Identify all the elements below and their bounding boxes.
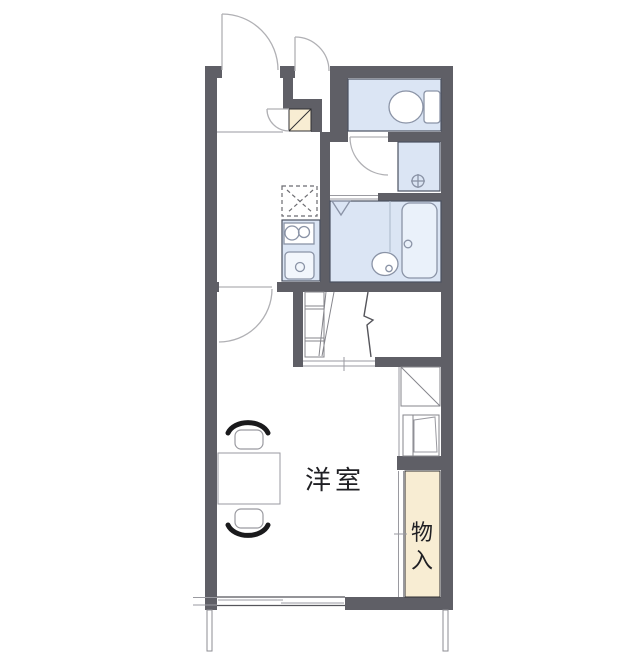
post-left xyxy=(207,610,212,651)
wall-above-closet xyxy=(397,456,453,470)
floor-plan-canvas: 物 入 洋室 xyxy=(0,0,640,658)
bathroom-sink-icon xyxy=(372,253,398,276)
wall-bottom-left-stub xyxy=(205,597,217,610)
wall-shoebox-top xyxy=(283,99,322,109)
toilet-tank-icon xyxy=(424,91,440,123)
wall-top-a xyxy=(205,66,222,78)
wall-midband-main xyxy=(277,282,441,292)
closet-label-char-2: 入 xyxy=(411,549,433,574)
wall-below-toilet-right xyxy=(388,132,441,142)
room-label: 洋室 xyxy=(305,466,365,496)
wall-midband-left xyxy=(205,282,219,292)
wall-shoebox-right xyxy=(311,109,322,132)
table xyxy=(218,453,280,504)
washer-space xyxy=(398,142,440,191)
kitchen-sink-icon xyxy=(285,252,314,279)
wall-stair-bottom xyxy=(375,357,441,367)
wall-top-b xyxy=(280,66,295,78)
chair-top-seat xyxy=(235,430,263,449)
wall-left xyxy=(205,66,217,610)
wall-bath-top-right xyxy=(378,193,441,201)
bathroom xyxy=(330,196,441,283)
page-background xyxy=(0,0,640,658)
wall-bottom-right xyxy=(345,597,453,610)
wall-right xyxy=(441,78,453,610)
toilet-bowl-icon xyxy=(389,91,423,123)
wall-toilet-left xyxy=(330,78,348,132)
chair-bottom-seat xyxy=(235,509,263,528)
wall-stair-left xyxy=(293,292,303,367)
post-right xyxy=(443,610,448,651)
wall-corridor-left xyxy=(320,142,330,292)
closet-label-char-1: 物 xyxy=(411,521,433,546)
wall-top-c xyxy=(330,66,453,78)
wall-below-toilet-left xyxy=(320,132,348,142)
washer-pan xyxy=(398,142,440,191)
